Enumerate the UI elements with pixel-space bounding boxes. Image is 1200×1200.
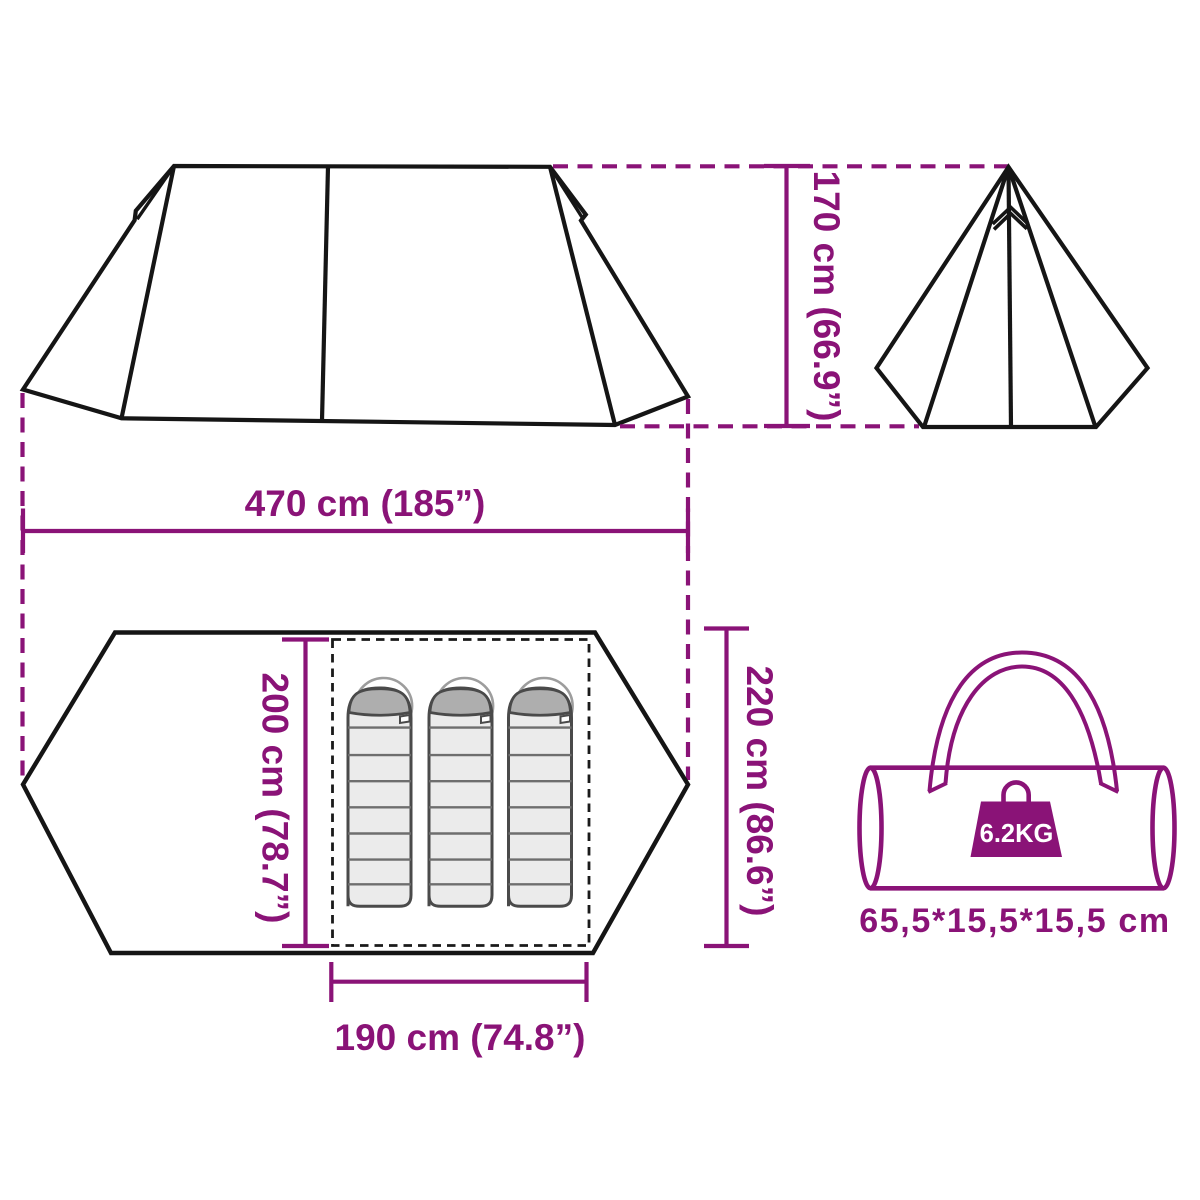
svg-text:470 cm (185”): 470 cm (185”) bbox=[245, 483, 486, 524]
svg-text:170 cm (66.9”): 170 cm (66.9”) bbox=[806, 171, 847, 422]
svg-text:65,5*15,5*15,5 cm: 65,5*15,5*15,5 cm bbox=[859, 902, 1171, 940]
svg-text:200 cm (78.7”): 200 cm (78.7”) bbox=[255, 673, 296, 924]
svg-text:190 cm (74.8”): 190 cm (74.8”) bbox=[335, 1017, 586, 1058]
svg-text:6.2KG: 6.2KG bbox=[980, 820, 1054, 848]
svg-text:220 cm (86.6”): 220 cm (86.6”) bbox=[739, 666, 780, 917]
